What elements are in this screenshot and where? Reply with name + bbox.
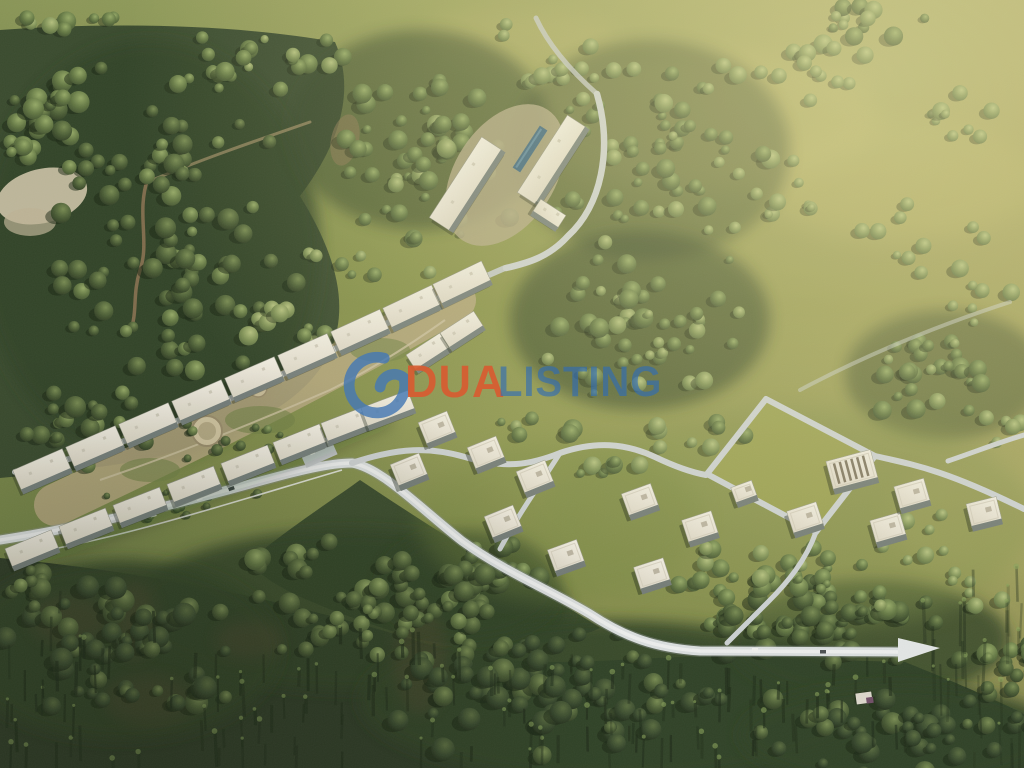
atmosphere: [0, 0, 1024, 768]
aerial-scene: [0, 0, 1024, 768]
film-grain: [0, 0, 1024, 768]
aerial-render-photo: DUA LISTING: [0, 0, 1024, 768]
